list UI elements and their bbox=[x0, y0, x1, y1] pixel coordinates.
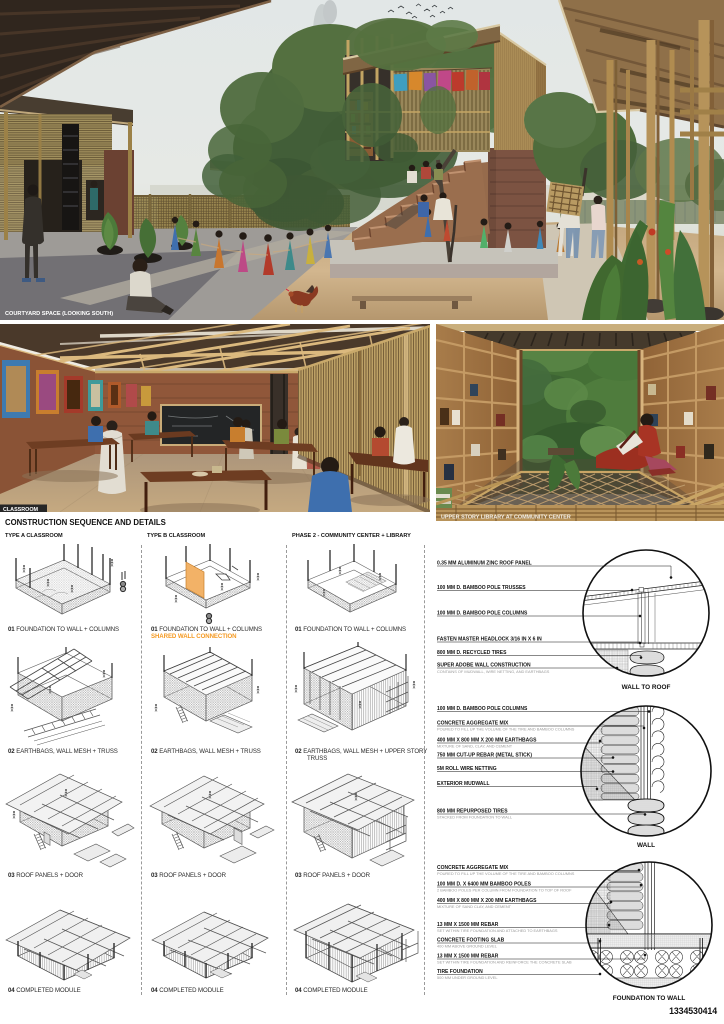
svg-text:SET WITHIN TIRE FOUNDATION AND: SET WITHIN TIRE FOUNDATION AND REINFORCE… bbox=[437, 960, 572, 965]
svg-text:FASTEN MASTER HEADLOCK 3/16 IN: FASTEN MASTER HEADLOCK 3/16 IN X 6 IN bbox=[437, 637, 542, 643]
svg-text:MIXTURE OF SAND CLAY, AND CEME: MIXTURE OF SAND CLAY, AND CEMENT bbox=[437, 904, 512, 909]
svg-text:WALL TO ROOF: WALL TO ROOF bbox=[622, 684, 671, 691]
svg-text:MIXTURE OF SAND, CLAY, AND CEM: MIXTURE OF SAND, CLAY, AND CEMENT bbox=[437, 744, 513, 749]
svg-text:EXTERIOR MUDWALL: EXTERIOR MUDWALL bbox=[437, 781, 490, 787]
svg-text:800 MM D. RECYCLED TIRES: 800 MM D. RECYCLED TIRES bbox=[437, 650, 507, 656]
svg-text:500 MM UNDER GROUND LEVEL: 500 MM UNDER GROUND LEVEL bbox=[437, 975, 498, 980]
svg-text:100 MM D. BAMBOO POLE COLUMNS: 100 MM D. BAMBOO POLE COLUMNS bbox=[437, 706, 528, 712]
svg-text:SUPER ADOBE WALL CONSTRUCTION: SUPER ADOBE WALL CONSTRUCTION bbox=[437, 663, 531, 669]
svg-text:0.35 MM ALUMINUM ZINC ROOF PAN: 0.35 MM ALUMINUM ZINC ROOF PANEL bbox=[437, 561, 532, 567]
svg-text:400 MM ABOVE GROUND LEVEL: 400 MM ABOVE GROUND LEVEL bbox=[437, 944, 498, 949]
svg-text:CONTAINS OF MUDWALL, WIRE NETT: CONTAINS OF MUDWALL, WIRE NETTING, AND E… bbox=[437, 669, 550, 674]
svg-text:UPPER STORY LIBRARY AT COMMUNI: UPPER STORY LIBRARY AT COMMUNITY CENTER bbox=[441, 515, 571, 521]
svg-text:COURTYARD SPACE (LOOKING SOUTH: COURTYARD SPACE (LOOKING SOUTH) bbox=[5, 311, 113, 317]
svg-text:STACKED FROM FOUNDATION TO WAL: STACKED FROM FOUNDATION TO WALL bbox=[437, 815, 513, 820]
svg-text:5M ROLL WIRE NETTING: 5M ROLL WIRE NETTING bbox=[437, 766, 497, 772]
svg-text:SET WITHIN TIRE FOUNDATION AND: SET WITHIN TIRE FOUNDATION AND ATTACHED … bbox=[437, 928, 558, 933]
svg-text:WALL: WALL bbox=[637, 842, 655, 849]
svg-text:FOUNDATION TO WALL: FOUNDATION TO WALL bbox=[613, 995, 686, 1002]
svg-text:100 MM D. BAMBOO POLE TRUSSES: 100 MM D. BAMBOO POLE TRUSSES bbox=[437, 585, 526, 591]
svg-text:POURED TO FILL UP THE VOLUME O: POURED TO FILL UP THE VOLUME OF THE TIRE… bbox=[437, 727, 575, 732]
svg-text:750 MM CUT-UP REBAR (METAL STI: 750 MM CUT-UP REBAR (METAL STICK) bbox=[437, 753, 532, 759]
svg-text:100 MM D. BAMBOO POLE COLUMNS: 100 MM D. BAMBOO POLE COLUMNS bbox=[437, 611, 528, 617]
svg-text:2 BAMBOO POLES PER COLUMN FROM: 2 BAMBOO POLES PER COLUMN FROM FOUNDATIO… bbox=[437, 888, 572, 893]
svg-text:CLASSROOM: CLASSROOM bbox=[3, 507, 39, 512]
svg-text:POURED TO FILL UP THE VOLUME O: POURED TO FILL UP THE VOLUME OF THE TIRE… bbox=[437, 871, 575, 876]
